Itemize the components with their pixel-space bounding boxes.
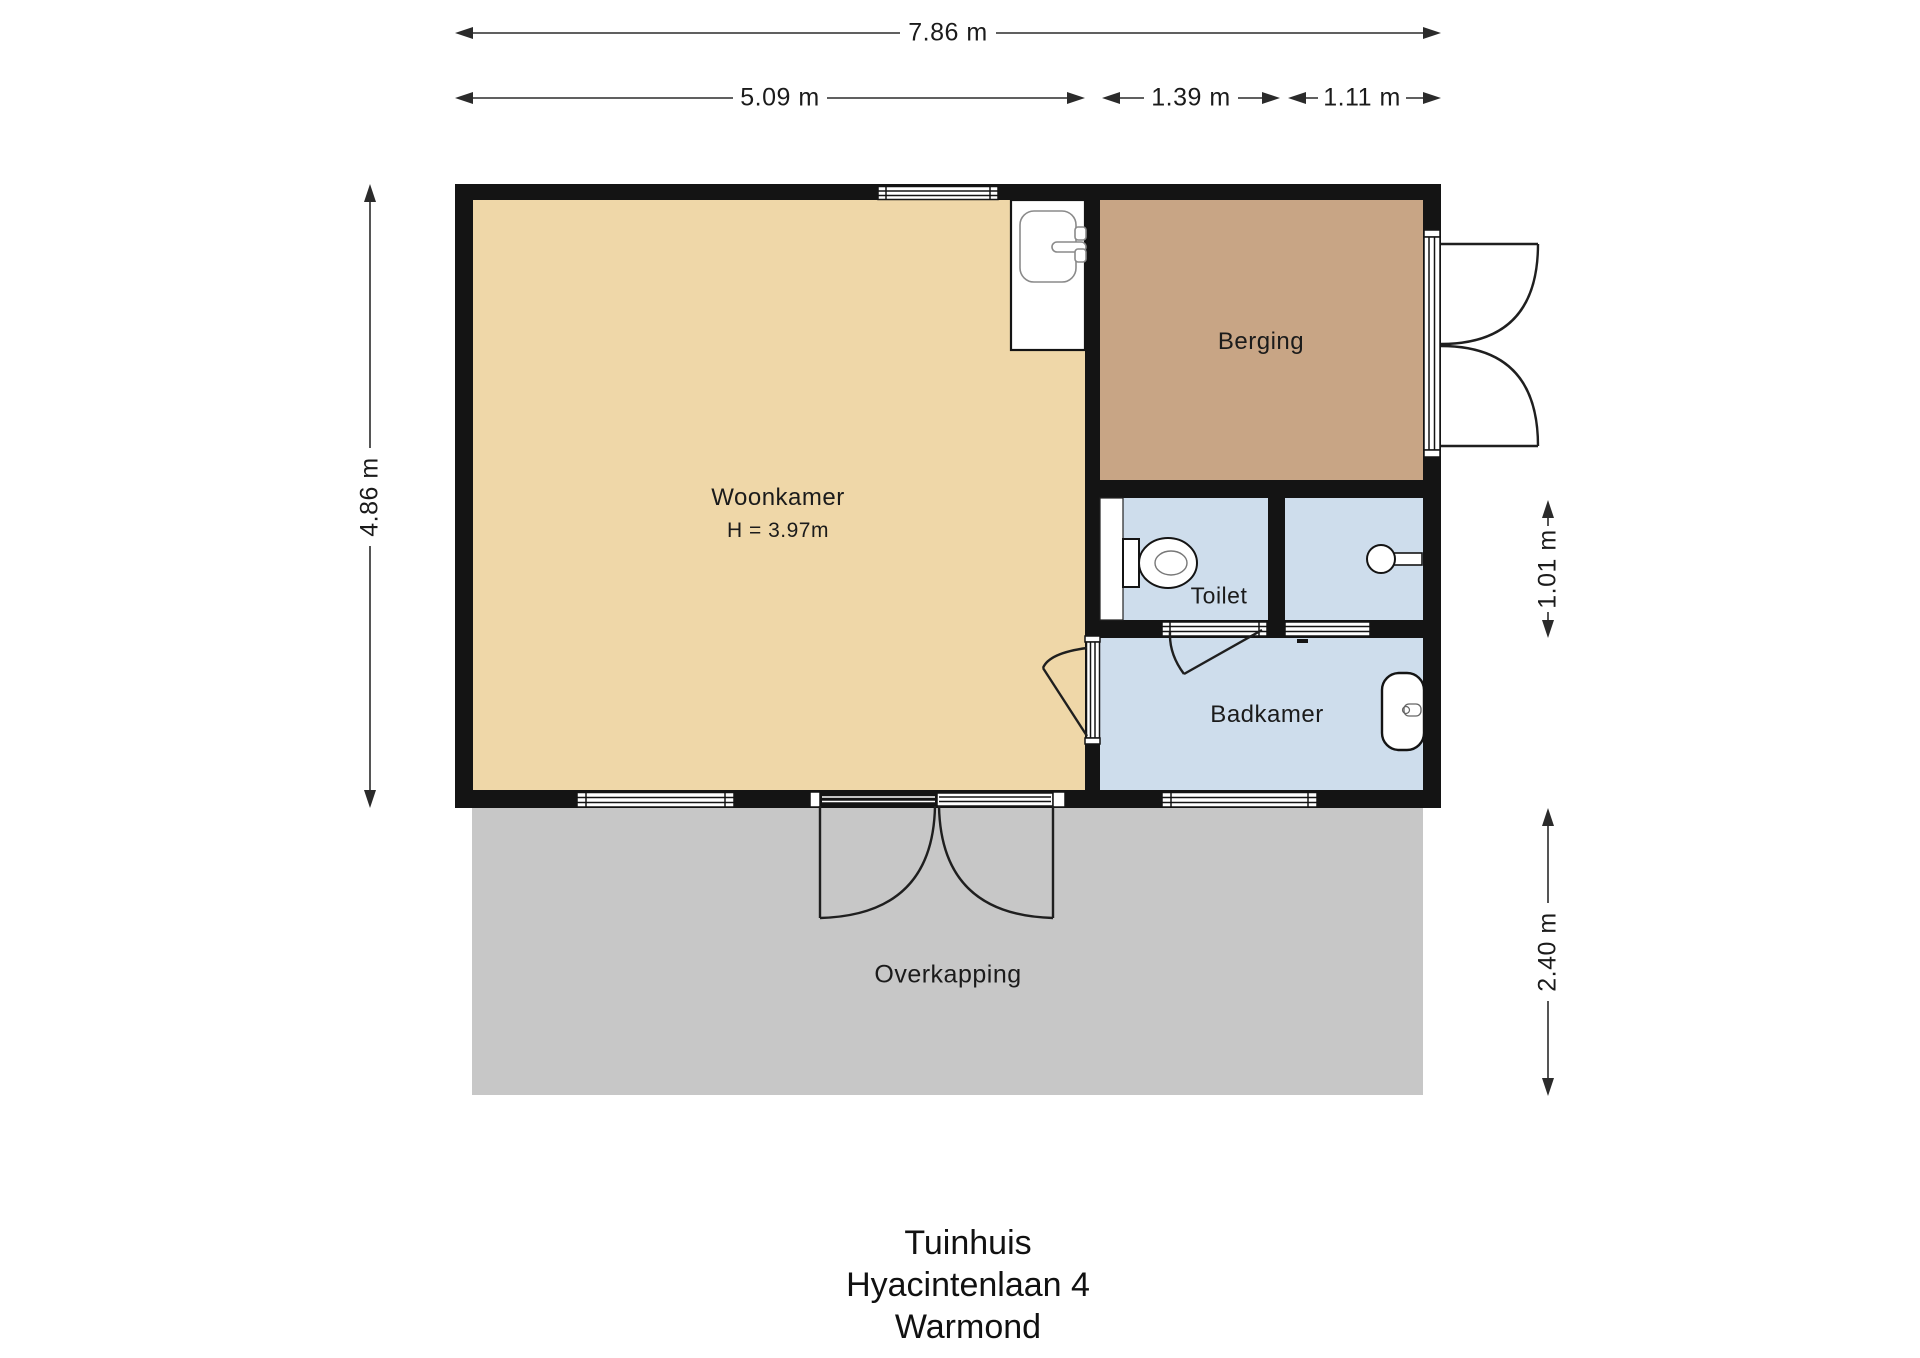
glass-sill-shower — [1285, 622, 1370, 636]
dim-canopy-label: 2.40 m — [1534, 912, 1563, 991]
door-toilet-frame — [1162, 622, 1267, 636]
wall-below-berging — [1100, 480, 1423, 498]
dim-height-label: 4.86 m — [356, 457, 385, 536]
wall-toilet-shower — [1268, 498, 1285, 620]
plan-title: Tuinhuis — [846, 1222, 1090, 1264]
room-height-note: H = 3.97m — [727, 519, 829, 543]
dim-toilet-col-label: 1.39 m — [1151, 84, 1230, 113]
room-label-berging: Berging — [1218, 328, 1304, 356]
room-label-badkamer: Badkamer — [1210, 701, 1323, 729]
window-bottom-badkamer — [1162, 793, 1317, 808]
plan-title-block: Tuinhuis Hyacintenlaan 4 Warmond — [846, 1222, 1090, 1348]
overkapping-floor — [472, 808, 1423, 1095]
door-berging-swing — [1441, 244, 1538, 446]
room-label-overkapping: Overkapping — [874, 961, 1021, 990]
dim-toilet-row-label: 1.01 m — [1534, 529, 1563, 608]
floorplan-canvas: 7.86 m 5.09 m 1.39 m 1.11 m 4.86 m 1.01 … — [0, 0, 1920, 1358]
bathroom-sink-icon — [1382, 673, 1424, 750]
plan-city: Warmond — [846, 1306, 1090, 1348]
door-overkapping-frame — [810, 792, 1065, 807]
plan-address: Hyacintenlaan 4 — [846, 1264, 1090, 1306]
toilet-icon — [1123, 538, 1197, 588]
floorplan-drawing — [0, 0, 1920, 1358]
door-badkamer-frame — [1085, 636, 1100, 744]
dim-shower-col-label: 1.11 m — [1323, 84, 1401, 113]
dim-total-width-label: 7.86 m — [908, 19, 987, 48]
door-berging-frame — [1424, 230, 1440, 457]
window-bottom-woonkamer — [577, 793, 734, 808]
room-label-toilet: Toilet — [1191, 583, 1248, 610]
wall-left — [455, 184, 473, 808]
shaft-panel — [1100, 498, 1123, 620]
door-overkapping-left-panel — [820, 793, 937, 806]
kitchen-sink-icon — [1011, 200, 1086, 350]
dash-mark — [1297, 639, 1308, 643]
room-label-woonkamer: Woonkamer — [711, 484, 844, 512]
window-top-woonkamer — [878, 187, 998, 200]
dim-living-width-label: 5.09 m — [740, 84, 819, 113]
